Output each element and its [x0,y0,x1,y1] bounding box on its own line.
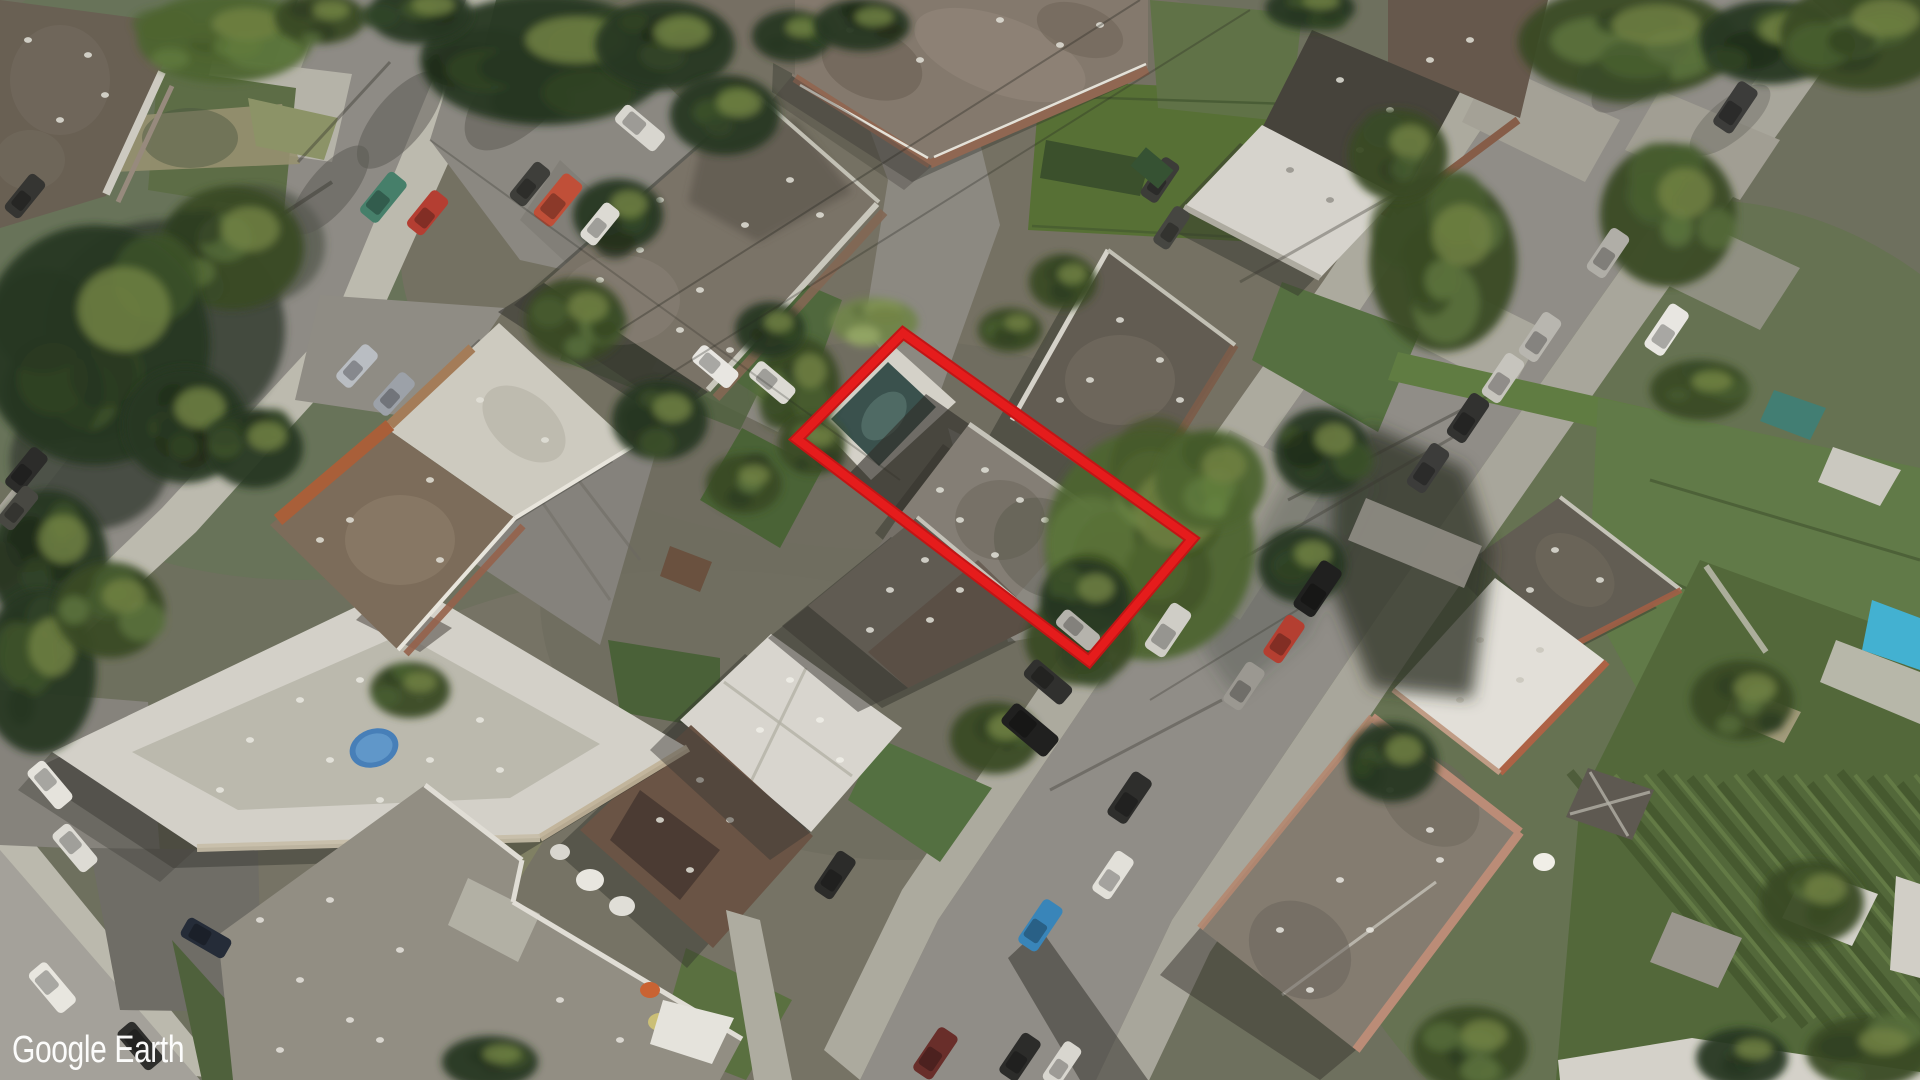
svg-text:Google Earth: Google Earth [12,1029,184,1071]
